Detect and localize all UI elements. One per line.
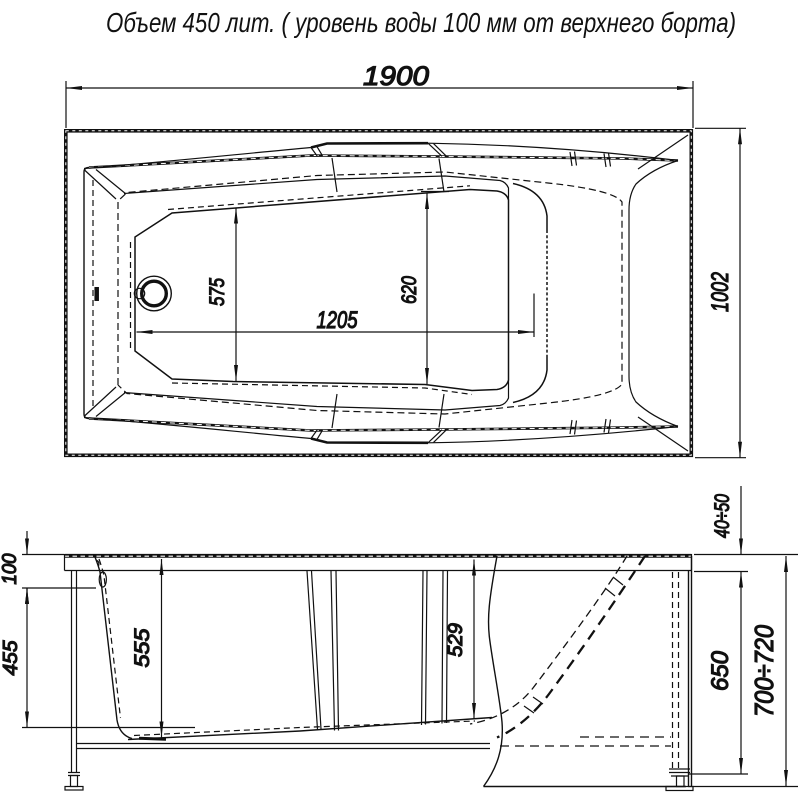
svg-text:1205: 1205 bbox=[317, 307, 359, 334]
svg-text:1002: 1002 bbox=[707, 272, 734, 312]
svg-text:40÷50: 40÷50 bbox=[711, 494, 734, 538]
svg-text:455: 455 bbox=[0, 640, 22, 676]
svg-text:620: 620 bbox=[398, 276, 421, 304]
svg-text:Объем 450 лит. ( уровень воды: Объем 450 лит. ( уровень воды 100 мм от … bbox=[106, 7, 736, 38]
svg-text:575: 575 bbox=[206, 278, 229, 306]
svg-text:650: 650 bbox=[707, 650, 734, 691]
svg-text:700÷720: 700÷720 bbox=[749, 625, 779, 717]
svg-text:100: 100 bbox=[0, 554, 21, 585]
svg-text:529: 529 bbox=[445, 623, 467, 657]
svg-text:555: 555 bbox=[131, 628, 154, 667]
svg-text:1900: 1900 bbox=[363, 61, 429, 91]
